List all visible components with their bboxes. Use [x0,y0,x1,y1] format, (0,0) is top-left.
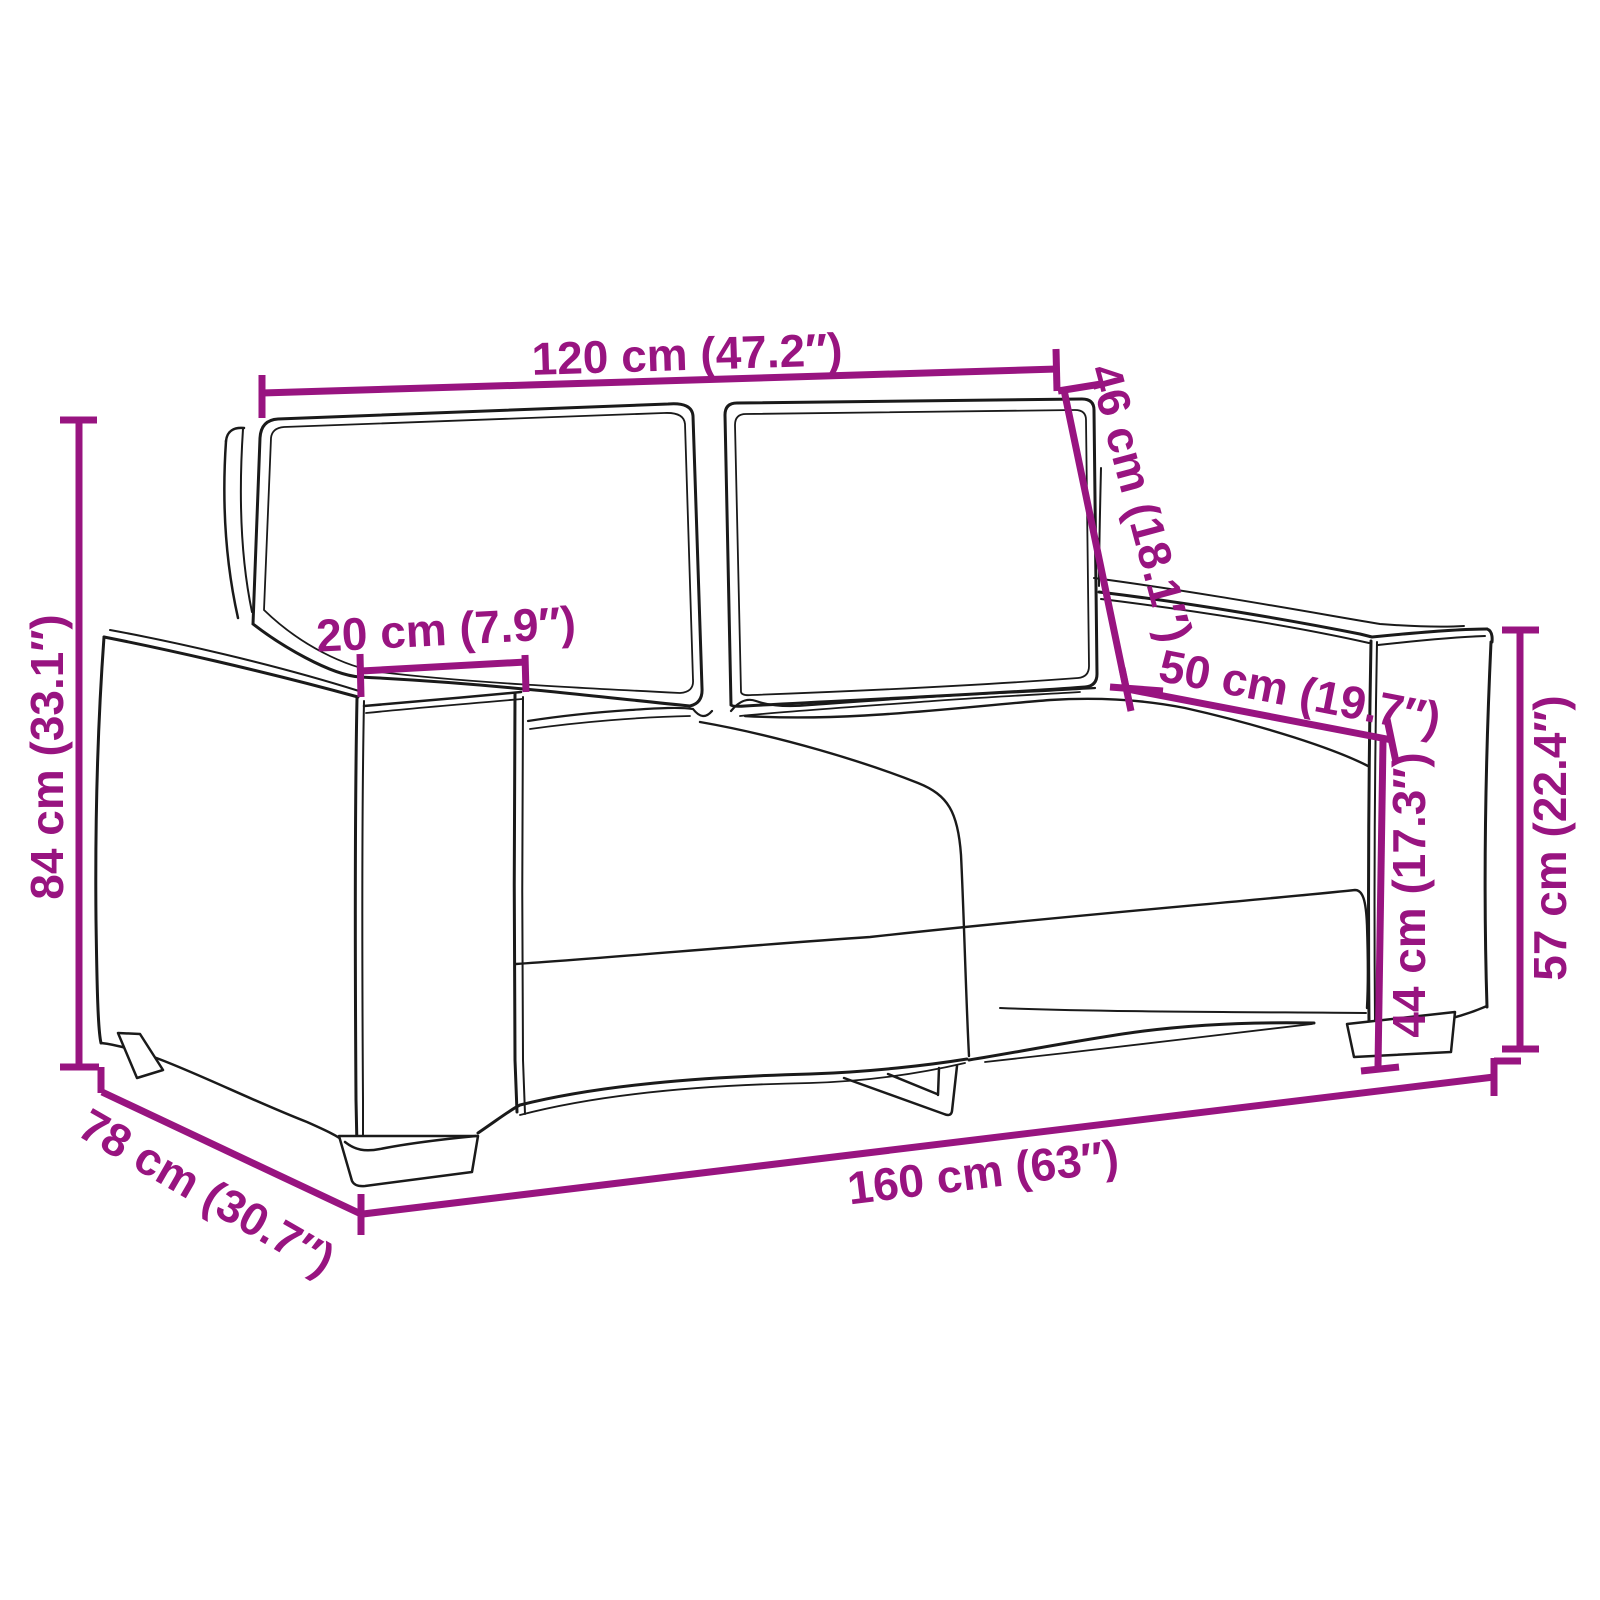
svg-text:78 cm (30.7″): 78 cm (30.7″) [70,1098,343,1286]
svg-text:57 cm (22.4″): 57 cm (22.4″) [1524,695,1576,980]
svg-text:84 cm (33.1″): 84 cm (33.1″) [21,614,73,899]
svg-text:50 cm (19.7″): 50 cm (19.7″) [1155,639,1445,745]
svg-text:120 cm (47.2″): 120 cm (47.2″) [531,323,843,385]
svg-text:44 cm (17.3″): 44 cm (17.3″) [1383,752,1435,1037]
svg-text:20 cm (7.9″): 20 cm (7.9″) [315,596,577,662]
